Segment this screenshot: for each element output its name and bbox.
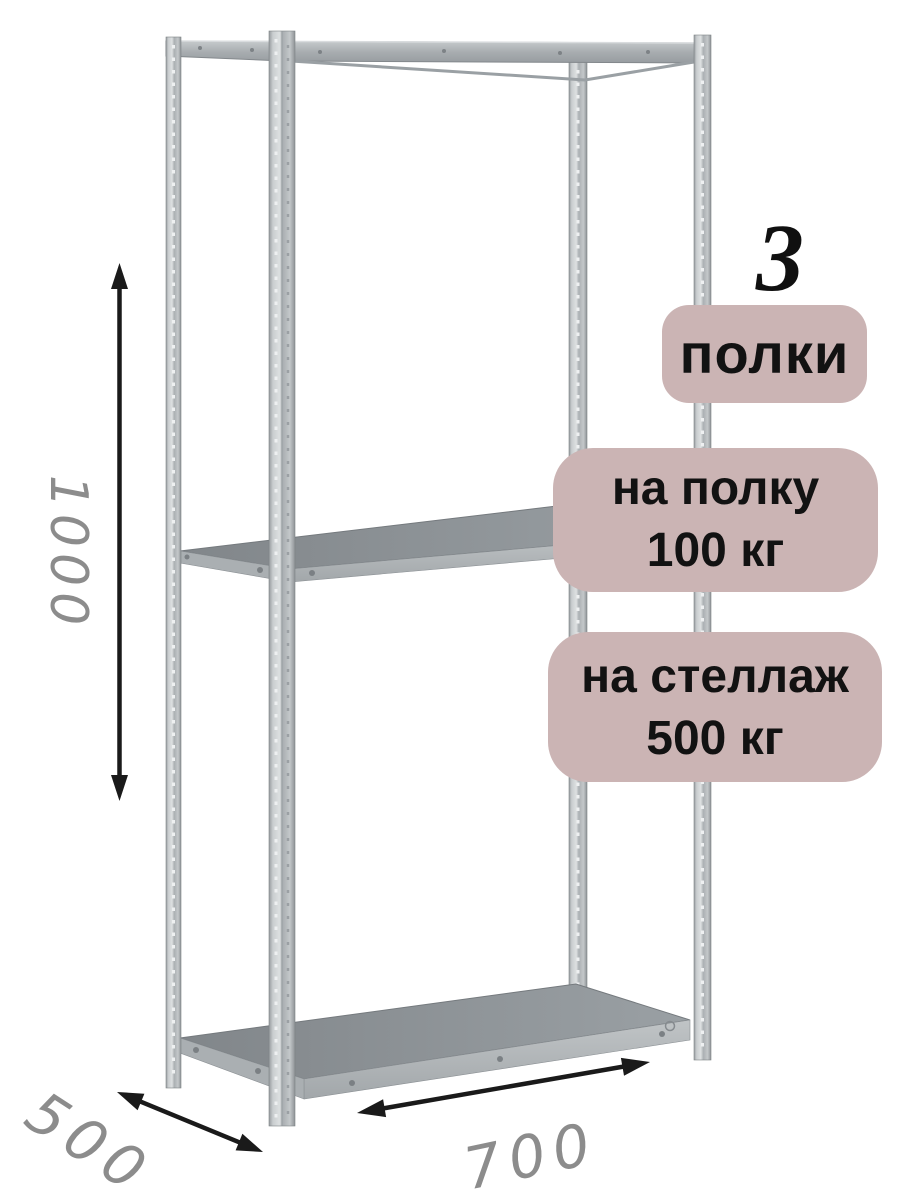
per-rack-load-line2: 500 кг xyxy=(548,708,882,770)
product-image: 3 полки на полку 100 кг на стеллаж 500 к… xyxy=(0,0,900,1200)
per-rack-load-line1: на стеллаж xyxy=(548,646,882,708)
per-shelf-load-line2: 100 кг xyxy=(553,520,878,582)
rack-post-rear-left xyxy=(166,37,181,1088)
per-shelf-load-line1: на полку xyxy=(553,458,878,520)
rack-top-shelf xyxy=(166,41,702,80)
arrowhead-left-icon xyxy=(357,1099,386,1117)
per-rack-load-badge: на стеллаж 500 кг xyxy=(548,632,882,782)
rack-post-front-left xyxy=(269,31,295,1126)
shelves-badge-label: полки xyxy=(680,322,850,385)
arrowhead-downright-icon xyxy=(236,1134,263,1152)
rack-bottom-shelf xyxy=(180,984,690,1099)
shelving-rack-illustration xyxy=(0,0,900,1200)
shelves-badge: полки xyxy=(662,305,867,403)
shelf-count: 3 xyxy=(738,208,822,318)
arrowhead-up-icon xyxy=(111,263,128,289)
arrowhead-down-icon xyxy=(111,775,128,801)
arrowhead-upleft-icon xyxy=(117,1092,144,1110)
per-shelf-load-badge: на полку 100 кг xyxy=(553,448,878,592)
height-dimension-arrow xyxy=(111,263,128,801)
height-dimension-label: 1000 xyxy=(40,443,96,663)
arrowhead-right-icon xyxy=(621,1058,650,1076)
